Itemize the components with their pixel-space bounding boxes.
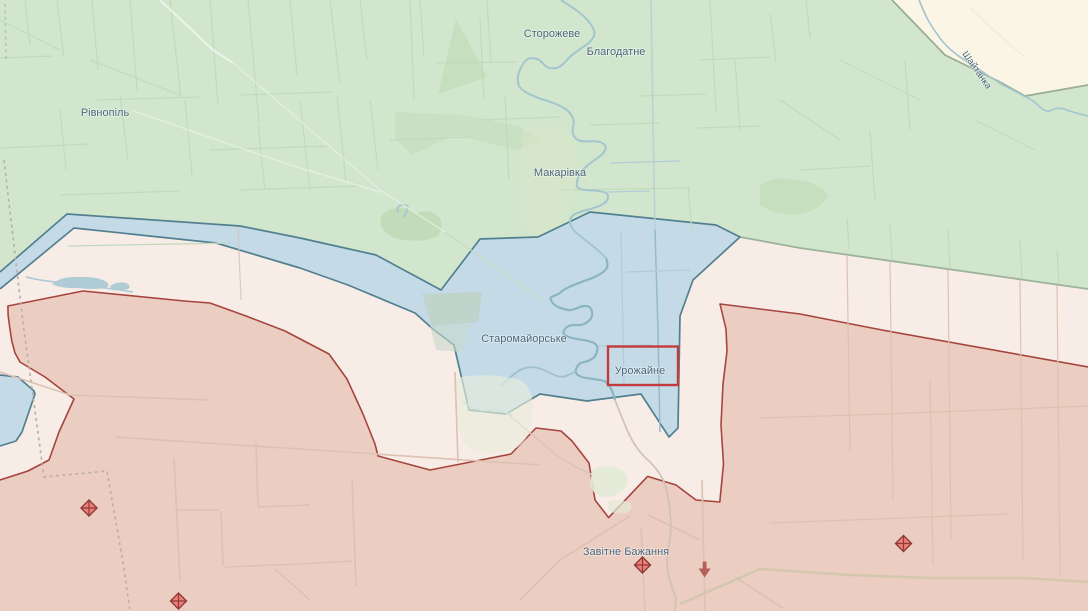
svg-text:Завітне Бажання: Завітне Бажання (583, 546, 669, 558)
svg-text:Старомайорське: Старомайорське (481, 333, 567, 345)
svg-text:Макарівка: Макарівка (534, 167, 587, 179)
svg-text:Урожайне: Урожайне (615, 365, 665, 377)
svg-text:Сторожеве: Сторожеве (524, 28, 580, 40)
svg-text:Рівнопіль: Рівнопіль (81, 107, 130, 119)
svg-text:Благодатне: Благодатне (587, 46, 646, 58)
